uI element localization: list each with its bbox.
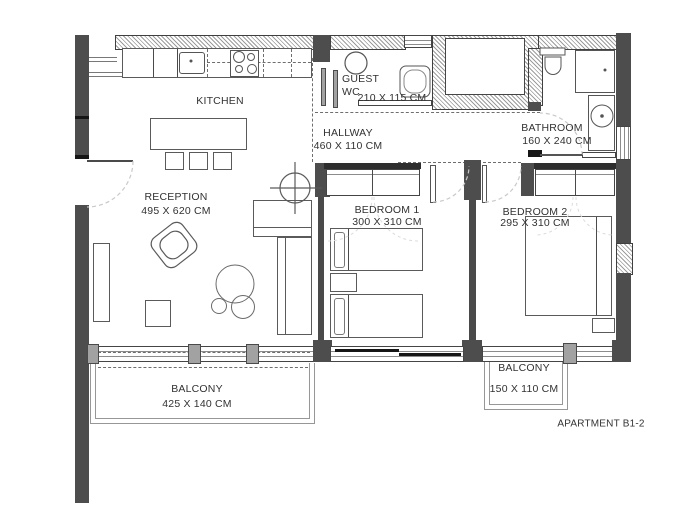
entrance-door-arc [87, 161, 133, 207]
reception-band-dashed [98, 352, 310, 353]
room-label-bathroom: BATHROOM [521, 122, 583, 134]
wc-top-wall-hatched [330, 35, 406, 50]
bedroom-divider-pillar-bottom [462, 340, 482, 362]
kitchen-left-counter-line [89, 72, 122, 77]
bedroom1-window-band [330, 346, 464, 362]
counter-divider [153, 49, 154, 77]
sliding-door-panel [335, 349, 399, 352]
side-table [145, 300, 171, 327]
room-label-guest-wc-line1: GUEST [342, 73, 379, 85]
room-dims-balcony-right: 150 X 110 CM [490, 383, 559, 395]
bedroom2-nightstand [592, 318, 615, 333]
window-line [90, 356, 314, 357]
wc-pocket-door-panel [321, 68, 326, 106]
window-mullion [188, 344, 201, 364]
plan-title: APARTMENT B1-2 [557, 419, 644, 430]
bedroom1-wardrobe [326, 169, 420, 196]
right-wall-window [616, 126, 631, 160]
bedroom2-door-arc [485, 166, 521, 202]
room-label-bedroom1: BEDROOM 1 [355, 204, 420, 216]
room-dims-guest-wc: 210 X 115 CM [358, 92, 427, 104]
bathroom-bottom-corner [528, 150, 542, 157]
kitchen-island [150, 118, 247, 150]
wc-top-window [404, 35, 432, 48]
floor-plan: KITCHEN RECEPTION 495 X 620 CM GUEST WC … [0, 0, 688, 532]
bed-pillow [334, 298, 345, 335]
room-label-reception: RECEPTION [144, 191, 207, 203]
bed-pillow-line [348, 295, 349, 337]
room-label-hallway: HALLWAY [323, 127, 373, 139]
window-line [483, 356, 615, 357]
wardrobe-divider [575, 170, 576, 195]
armchair [148, 219, 200, 271]
sliding-door-panel [399, 353, 461, 356]
bedroom2-left-pillar [521, 163, 534, 196]
kitchen-stove [230, 50, 259, 77]
duct-shaft-void [445, 38, 525, 95]
kitchen-wc-pillar [313, 35, 330, 62]
counter-divider-dashed [291, 49, 292, 77]
upper-cabinet-dashed [207, 62, 311, 63]
wardrobe-divider [372, 170, 373, 195]
sofa-top-section [253, 200, 312, 237]
bedroom1-nightstand [330, 273, 357, 292]
bathroom-top-wall-hatched [538, 35, 618, 50]
bedroom1-door-leaf [430, 165, 436, 203]
bar-stool [189, 152, 208, 170]
bar-stool [213, 152, 232, 170]
bedroom2-bed [525, 216, 612, 316]
exterior-wall-right-lower [616, 273, 631, 348]
exterior-wall-left-upper [75, 35, 89, 155]
kitchen-left-sill [89, 57, 117, 62]
window-mullion [246, 344, 259, 364]
sofa-right-section [277, 237, 312, 335]
counter-divider-dashed [207, 49, 208, 77]
entrance-door-leaf [87, 160, 133, 162]
bedroom2-door-leaf [482, 165, 487, 203]
window-line [620, 127, 621, 159]
hallway-top-boundary-dashed [315, 112, 540, 113]
kitchen-counter [122, 48, 312, 78]
room-label-balcony-left: BALCONY [171, 383, 223, 395]
toilet [540, 48, 565, 75]
kitchen-sink [179, 52, 205, 74]
room-label-balcony-right: BALCONY [498, 362, 550, 374]
counter-divider-dashed [263, 49, 264, 77]
sofa-cushion-line [254, 227, 311, 228]
bedroom-divider-wall [469, 200, 476, 342]
counter-divider [177, 49, 178, 77]
bedroom2-band-right-pillar [612, 340, 631, 362]
reception-window-band [89, 346, 315, 362]
wardrobe-inner-line [327, 174, 419, 175]
sofa-cushion-line [285, 238, 286, 334]
bedroom1-reception-wall [318, 197, 324, 342]
window-line [483, 351, 615, 352]
exterior-wall-right-hatched [616, 243, 633, 275]
room-dims-bathroom: 160 X 240 CM [522, 135, 592, 147]
bed-pillow-line [596, 217, 597, 315]
bedroom1-bed-1 [330, 228, 423, 271]
room-dims-reception: 495 X 620 CM [141, 205, 211, 217]
bar-stool [165, 152, 184, 170]
bedroom2-wardrobe [535, 169, 615, 196]
window-mullion [87, 344, 99, 364]
wc-pocket-door-panel [333, 70, 338, 108]
tv-sideboard [93, 243, 110, 322]
bathroom-door-pillar [528, 102, 541, 111]
room-label-kitchen: KITCHEN [196, 95, 244, 107]
plant-circles [212, 265, 255, 319]
window-mullion [563, 343, 577, 364]
window-line [405, 40, 431, 41]
bedroom2-window-band [482, 346, 616, 362]
window-line [405, 44, 431, 45]
wc-basin [345, 52, 367, 74]
room-dims-bedroom1: 300 X 310 CM [352, 216, 422, 228]
exterior-wall-right-mid [616, 160, 631, 243]
entrance-jamb-cap [75, 155, 89, 159]
bathroom-vanity [575, 50, 615, 93]
bedroom1-bed-2 [330, 294, 423, 338]
bedroom-divider-pillar-top [464, 160, 481, 200]
bathroom-left-wall-hatched [528, 48, 543, 106]
window-line [624, 127, 625, 159]
bed-pillow [334, 232, 345, 268]
room-dims-bedroom2: 295 X 310 CM [500, 217, 570, 229]
window-line [331, 356, 463, 357]
balcony-left-top-dashed [98, 367, 308, 368]
bed-pillow-line [348, 229, 349, 270]
wall-joint-tick [75, 116, 89, 119]
room-dims-hallway: 460 X 110 CM [314, 140, 383, 152]
room-dims-balcony-left: 425 X 140 CM [162, 398, 232, 410]
bathroom-door-arc [540, 113, 582, 155]
bathroom-bottom-wall [582, 152, 616, 158]
washing-machine [588, 95, 615, 151]
window-line [628, 127, 629, 159]
exterior-wall-right-upper [616, 33, 631, 126]
